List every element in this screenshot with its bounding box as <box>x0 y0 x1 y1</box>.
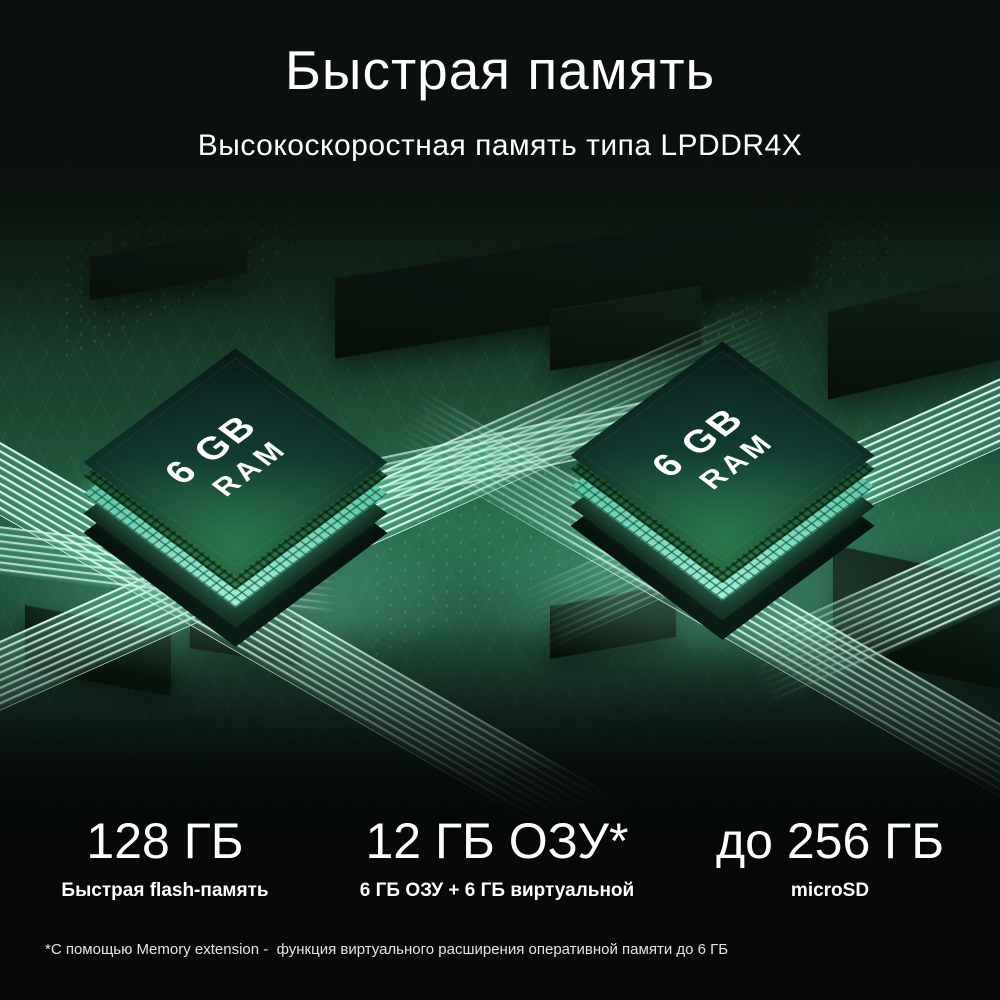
chip-capacity-text: 6 GB <box>154 407 266 491</box>
spec-ram-value: 12 ГБ ОЗУ* <box>330 815 664 868</box>
chip-type-text: RAM <box>204 433 295 501</box>
spec-storage-value: 128 ГБ <box>30 815 300 868</box>
spec-microsd-value: до 256 ГБ <box>690 815 970 868</box>
page-subtitle: Высокоскоростная память типа LPDDR4X <box>0 129 1000 163</box>
spec-storage-label: Быстрая flash-память <box>30 880 300 902</box>
circuit-board-background: 6 GB RAM 6 GB RAM <box>0 140 1000 880</box>
promo-banner: 6 GB RAM 6 GB RAM <box>0 0 1000 1000</box>
chip-capacity-text: 6 GB <box>641 400 753 484</box>
chip-type-text: RAM <box>691 426 782 494</box>
spec-ram-label: 6 ГБ ОЗУ + 6 ГБ виртуальной <box>330 880 664 902</box>
page-title: Быстрая память <box>0 38 1000 102</box>
spec-storage: 128 ГБ Быстрая flash-память <box>30 815 300 902</box>
spec-microsd-label: microSD <box>690 880 970 902</box>
spec-ram: 12 ГБ ОЗУ* 6 ГБ ОЗУ + 6 ГБ виртуальной <box>330 815 664 902</box>
spec-microsd: до 256 ГБ microSD <box>690 815 970 902</box>
footnote: *С помощью Memory extension - функция ви… <box>45 941 965 958</box>
